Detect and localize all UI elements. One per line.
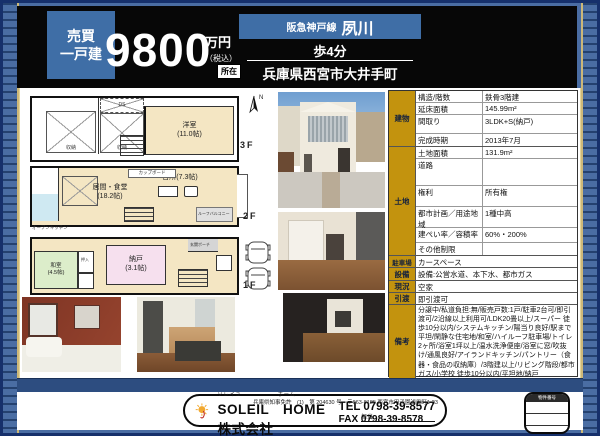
walk-time: 歩4分	[239, 41, 421, 60]
soleil-sun-logo-icon	[195, 399, 212, 423]
row-handover: 引渡 即引渡可	[389, 293, 577, 305]
price-unit: 万円	[205, 32, 237, 51]
section-building: 建物 構造/階数 鉄骨3階建 延床面積 145.99m² 間取り 3LDK+S(…	[389, 91, 577, 147]
photo-corridor	[283, 293, 385, 362]
row-key: 道路	[416, 159, 483, 185]
row-land-area: 土地面積 131.9m²	[416, 147, 577, 159]
row-road: 道路	[416, 159, 577, 186]
row-key: 権利	[416, 186, 483, 206]
2f-kitchen-sink	[158, 186, 178, 197]
row-floor-area: 延床面積 145.99m²	[416, 103, 577, 115]
3f-western-room: 洋室 (11.0帖)	[144, 106, 234, 155]
remarks-text: 分譲中/私道負担:無/販売戸数:1戸/駐車2台可/即引渡可/2沿線以上利用可/L…	[416, 305, 577, 379]
1f-entrance-porch: 玄関ポーチ	[188, 239, 218, 252]
floor-label-3f: 3F	[240, 140, 255, 150]
row-facilities: 設備 設備:公営水道、本下水、都市ガス	[389, 268, 577, 281]
row-rights: 権利 所有権	[416, 186, 577, 207]
1f-wc	[216, 255, 232, 271]
row-key: 構造/階数	[416, 91, 483, 102]
1f-stairs	[178, 269, 208, 287]
1f-storage-small	[78, 273, 94, 289]
section-label-building: 建物	[389, 91, 416, 146]
section-label-parking: 駐車場	[389, 256, 416, 267]
floorplan-2f: 居間・食堂 (18.2帖) 台所(7.3帖) カップボード ルーフバルコニー	[30, 166, 239, 227]
row-key: 土地面積	[416, 147, 483, 158]
photo-kitchen	[137, 297, 235, 372]
photo-bathroom	[22, 297, 121, 372]
japanese-room-size: (4.5帖)	[48, 270, 65, 277]
property-number-box: 物件番号	[524, 392, 570, 434]
property-address: 兵庫県西宮市大井手町	[222, 63, 438, 83]
porch-label: 玄関ポーチ	[190, 242, 210, 248]
compass-n-letter: N	[259, 95, 263, 101]
station-box: 阪急神戸線 夙川	[239, 14, 421, 39]
right-border-pattern	[581, 3, 597, 433]
row-value: 所有権	[483, 186, 577, 206]
row-coverage: 建ぺい率／容積率 60%・200%	[416, 228, 577, 243]
row-value: 1種中高	[483, 207, 577, 227]
photo-exterior	[278, 92, 385, 208]
3f-stairs	[120, 135, 144, 156]
row-key: 建ぺい率／容積率	[416, 228, 483, 242]
row-value	[483, 243, 577, 255]
furigana-soleil: ソレイユ	[218, 392, 242, 398]
duct-space-label: DS	[101, 102, 143, 108]
2f-stairs	[124, 207, 154, 222]
row-value: 即引渡可	[416, 293, 577, 304]
property-number-row	[526, 402, 568, 414]
row-completion: 完成時期 2013年7月	[416, 134, 577, 146]
details-table: 建物 構造/階数 鉄骨3階建 延床面積 145.99m² 間取り 3LDK+S(…	[388, 90, 578, 377]
japanese-room-label: 和室	[48, 263, 65, 270]
living-dining-label: 居間・食堂	[80, 184, 140, 193]
price-value: 9800	[105, 23, 211, 77]
row-value	[483, 159, 577, 185]
rail-line-name: 阪急神戸線	[286, 19, 336, 34]
row-value: 131.9m²	[483, 147, 577, 158]
row-value: 60%・200%	[483, 228, 577, 242]
row-layout: 間取り 3LDK+S(納戸)	[416, 115, 577, 134]
row-other-restrictions: その他制限	[416, 243, 577, 255]
section-label-land: 土地	[389, 147, 416, 255]
row-zoning: 都市計画／用途地域 1種中高	[416, 207, 577, 228]
3f-duct-space: DS	[100, 98, 144, 113]
row-key: その他制限	[416, 243, 483, 255]
storeroom-label: 納戸	[125, 256, 146, 265]
oshiire-label: 押入	[81, 257, 89, 263]
row-key: 完成時期	[416, 134, 483, 146]
row-value: カースペース	[416, 256, 577, 267]
photo-living	[278, 212, 385, 290]
category-line2: 一戸建	[60, 45, 102, 63]
company-info-box: 兵庫県知事免許 (1) 第 204630 号 〒663-8185 西宮市甲子園浦…	[183, 394, 447, 427]
furigana-home: ホーム	[278, 392, 296, 398]
row-key: 間取り	[416, 115, 483, 133]
row-value: 145.99m²	[483, 103, 577, 114]
2f-roof-balcony: ルーフバルコニー	[196, 207, 233, 222]
2f-living-dining: 居間・食堂 (18.2帖)	[80, 184, 140, 202]
section-land: 土地 土地面積 131.9m² 道路 権利 所有権 都市計画／用途地域 1種中高	[389, 147, 577, 256]
2f-cupboard-label: カップボード	[128, 169, 176, 178]
section-label-status: 現況	[389, 281, 416, 292]
property-number-row	[526, 414, 568, 426]
2f-toilet	[32, 168, 59, 195]
row-structure: 構造/階数 鉄骨3階建	[416, 91, 577, 103]
license-line: 兵庫県知事免許 (1) 第 204630 号 〒663-8185 西宮市甲子園浦…	[253, 398, 438, 406]
car-space-icons	[243, 240, 273, 292]
roof-balcony-label: ルーフバルコニー	[198, 211, 230, 217]
3f-closet-1: 収納	[46, 111, 96, 153]
1f-oshiire: 押入	[78, 251, 94, 273]
compass-icon: N	[247, 93, 265, 115]
floorplan-1f: 和室 (4.5帖) 押入 納戸 (3.1帖) 玄関ポーチ	[30, 237, 239, 295]
header-divider-line	[247, 60, 413, 61]
western-room-label: 洋室	[177, 122, 202, 131]
closet-label: 収納	[47, 144, 95, 151]
flyer-page: 売買 一戸建 9800 万円 （税込） 所在 阪急神戸線 夙川 歩4分 兵庫県西…	[0, 0, 600, 436]
row-value: 2013年7月	[483, 134, 577, 146]
price-unit-block: 万円 （税込）	[205, 32, 237, 64]
property-number-label: 物件番号	[526, 394, 568, 402]
2f-kitchen-stove	[184, 186, 198, 197]
2f-bathroom	[32, 194, 59, 221]
staff-in-charge-line: 担当	[361, 412, 435, 422]
category-line1: 売買	[67, 27, 95, 45]
living-dining-size: (18.2帖)	[80, 193, 140, 202]
1f-storeroom: 納戸 (3.1帖)	[106, 245, 166, 285]
row-parking: 駐車場 カースペース	[389, 256, 577, 268]
section-label-facilities: 設備	[389, 268, 416, 280]
header-bar: 売買 一戸建 9800 万円 （税込） 所在 阪急神戸線 夙川 歩4分 兵庫県西…	[17, 6, 577, 88]
staff-label: 担当	[361, 415, 373, 421]
1f-japanese-room: 和室 (4.5帖)	[34, 251, 78, 289]
row-key: 都市計画／用途地域	[416, 207, 483, 227]
row-current-status: 現況 空家	[389, 281, 577, 293]
row-key: 延床面積	[416, 103, 483, 114]
row-remarks: 備考 分譲中/私道負担:無/販売戸数:1戸/駐車2台可/即引渡可/2沿線以上利用…	[389, 305, 577, 379]
station-name: 夙川	[341, 15, 373, 39]
floor-label-2f: 2F	[243, 211, 258, 221]
floorplan-3f: 収納 収納 DS 洋室 (11.0帖)	[30, 96, 239, 162]
western-room-size: (11.0帖)	[177, 131, 202, 140]
section-label-handover: 引渡	[389, 293, 416, 304]
section-label-remarks: 備考	[389, 305, 416, 379]
row-value: 空家	[416, 281, 577, 292]
row-value: 設備:公営水道、本下水、都市ガス	[416, 268, 577, 280]
row-value: 鉄骨3階建	[483, 91, 577, 102]
row-value: 3LDK+S(納戸)	[483, 115, 577, 133]
open-kitchen-caption: オープンキッチン	[32, 225, 68, 231]
storeroom-size: (3.1帖)	[125, 265, 146, 274]
